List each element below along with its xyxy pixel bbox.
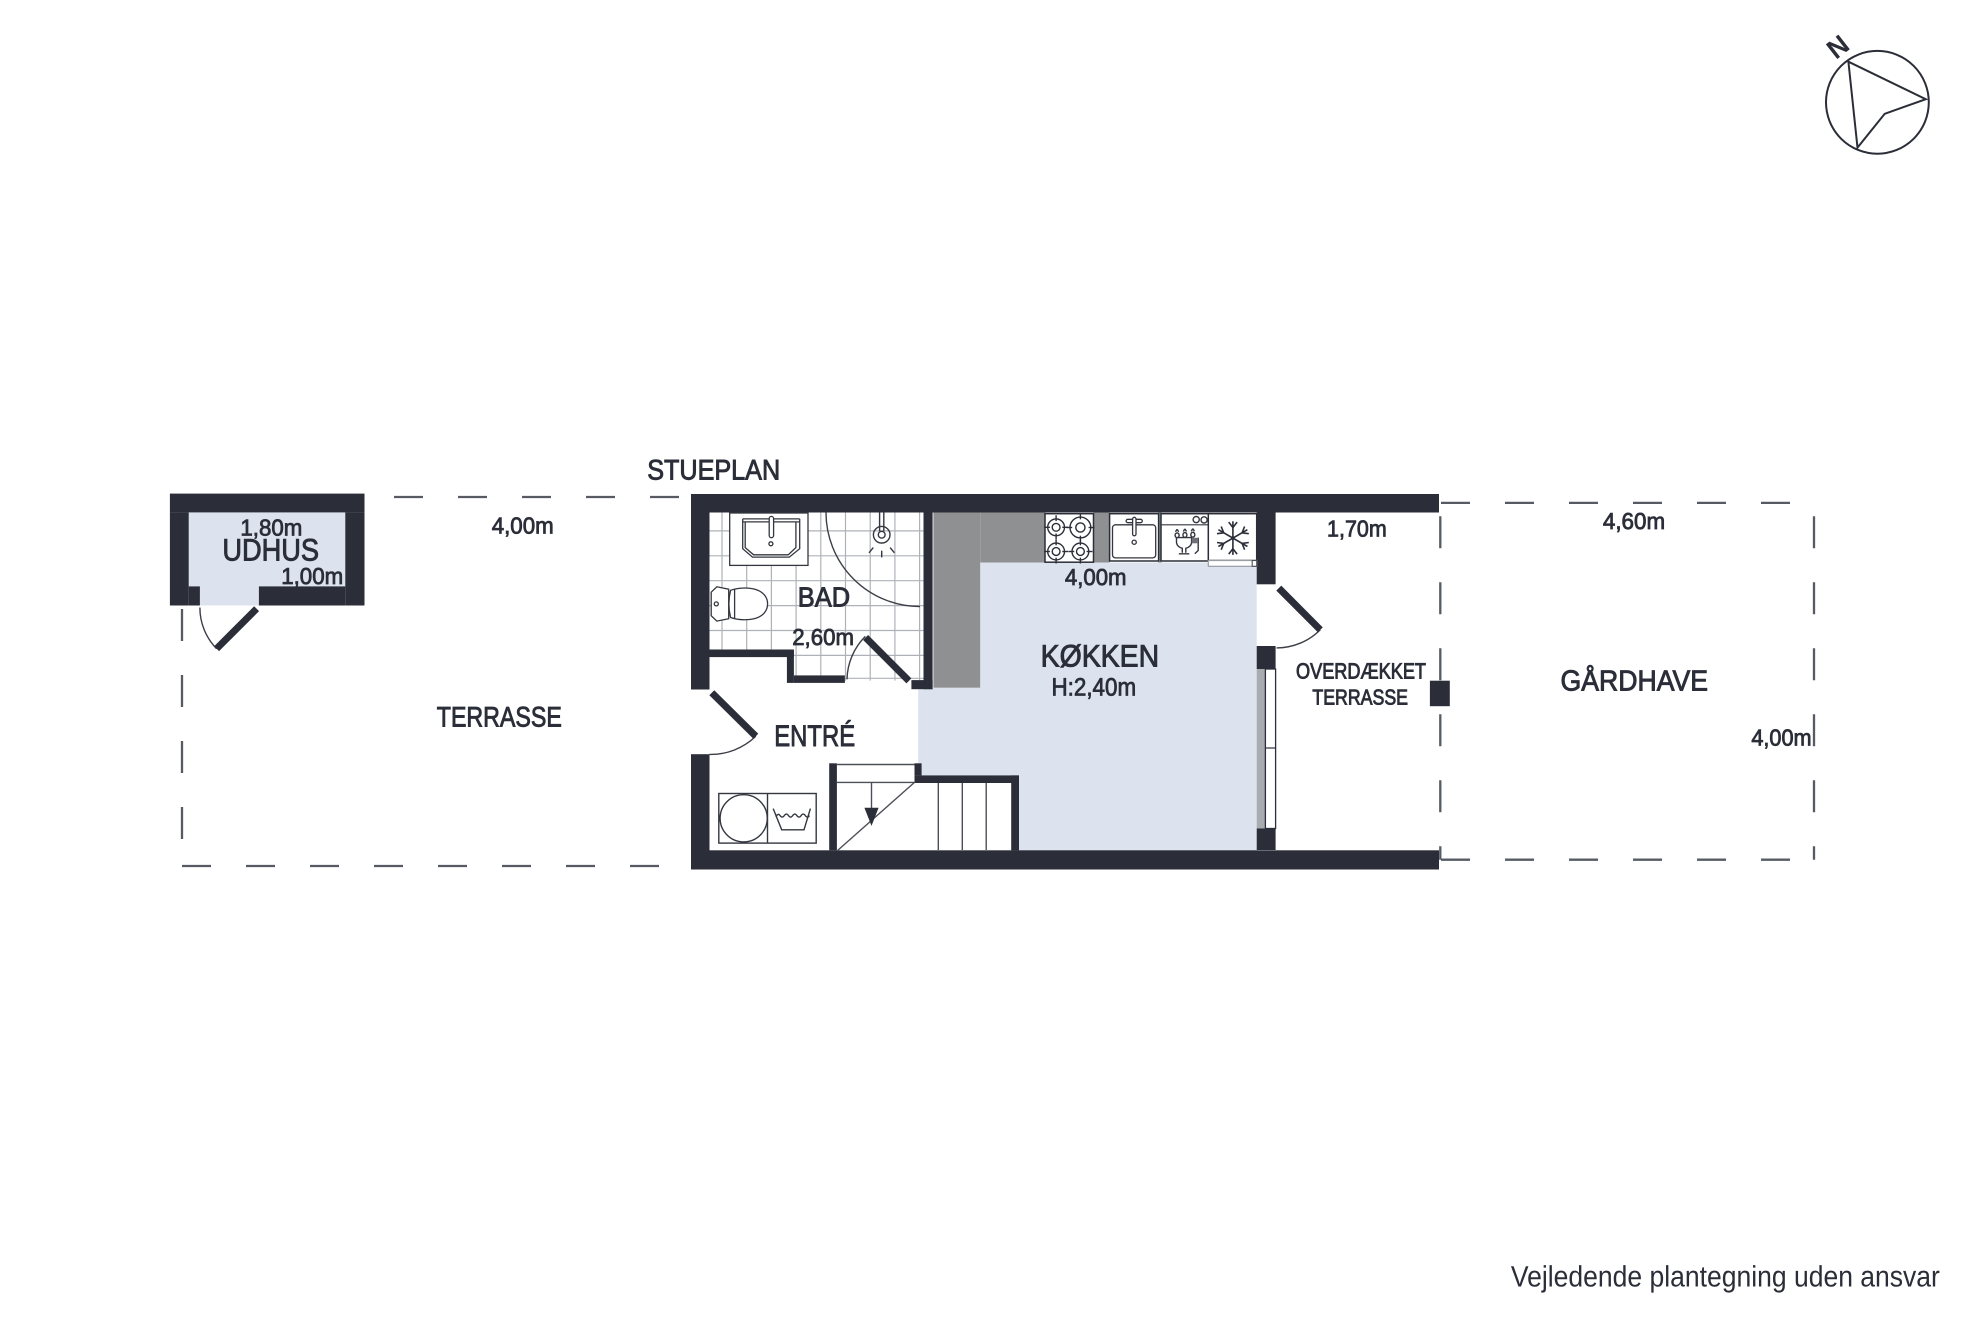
svg-text:H:2,40m: H:2,40m: [1052, 674, 1137, 702]
svg-text:BAD: BAD: [798, 582, 850, 613]
svg-text:4,60m: 4,60m: [1603, 508, 1665, 534]
svg-text:STUEPLAN: STUEPLAN: [647, 455, 780, 487]
svg-text:KØKKEN: KØKKEN: [1041, 639, 1160, 674]
svg-text:1,00m: 1,00m: [281, 563, 343, 589]
svg-text:GÅRDHAVE: GÅRDHAVE: [1561, 665, 1709, 698]
svg-text:Vejledende plantegning uden an: Vejledende plantegning uden ansvar: [1511, 1260, 1940, 1293]
svg-text:1,80m: 1,80m: [240, 515, 302, 541]
svg-text:4,00m: 4,00m: [492, 512, 554, 538]
svg-text:1,70m: 1,70m: [1327, 516, 1387, 542]
svg-text:4,00m: 4,00m: [1751, 725, 1811, 751]
svg-text:TERRASSE: TERRASSE: [1312, 686, 1408, 710]
svg-text:OVERDÆKKET: OVERDÆKKET: [1296, 659, 1426, 684]
svg-text:TERRASSE: TERRASSE: [437, 700, 562, 732]
svg-text:2,60m: 2,60m: [792, 624, 854, 650]
svg-text:4,00m: 4,00m: [1065, 564, 1127, 590]
svg-text:ENTRÉ: ENTRÉ: [774, 720, 855, 753]
